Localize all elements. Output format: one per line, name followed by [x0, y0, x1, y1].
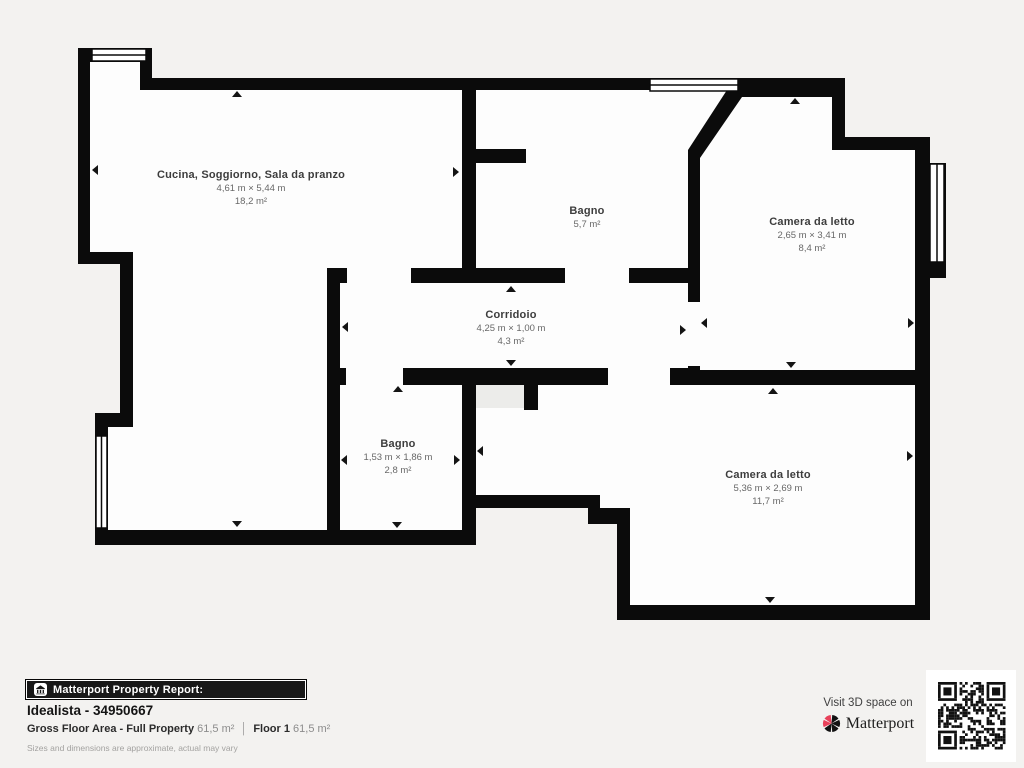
- matterport-wordmark: Matterport: [846, 715, 914, 733]
- matterport-floor-plan-report: Cucina, Soggiorno, Sala da pranzo 4,61 m…: [0, 0, 1024, 768]
- matterport-logo: Matterport: [816, 714, 920, 733]
- niche-wall: [524, 383, 538, 410]
- floor-plan: [0, 0, 1024, 768]
- window-top-bagno: [650, 79, 738, 91]
- window-right-bedroom: [930, 164, 944, 262]
- floor-label: Floor 1: [253, 723, 290, 735]
- gfa-value: 61,5 m²: [197, 723, 234, 735]
- gfa-label: Gross Floor Area - Full Property: [27, 723, 194, 735]
- matterport-pinwheel-icon: [822, 714, 841, 733]
- report-bar: Matterport Property Report:: [25, 679, 307, 700]
- window-left-living: [96, 436, 107, 528]
- room-floors: [90, 62, 915, 605]
- room-floor-corridoio: [340, 283, 688, 368]
- room-floor-camera-br: [476, 385, 915, 605]
- area-stats: Gross Floor Area - Full Property 61,5 m²…: [27, 723, 330, 735]
- stats-divider: │: [240, 723, 247, 735]
- disclaimer-text: Sizes and dimensions are approximate, ac…: [27, 743, 238, 753]
- floor-value: 61,5 m²: [293, 723, 330, 735]
- window-top-left: [92, 49, 146, 61]
- room-floor-bagno-small: [340, 385, 462, 530]
- report-bar-label: Matterport Property Report:: [53, 684, 203, 696]
- bagno-stub-wall: [476, 149, 526, 163]
- branding-block: Visit 3D space on Matterport: [816, 696, 920, 733]
- entry-niche: [476, 385, 524, 408]
- property-title: Idealista - 34950667: [27, 703, 153, 718]
- matterport-house-icon: [34, 683, 47, 696]
- visit-3d-text: Visit 3D space on: [816, 696, 920, 711]
